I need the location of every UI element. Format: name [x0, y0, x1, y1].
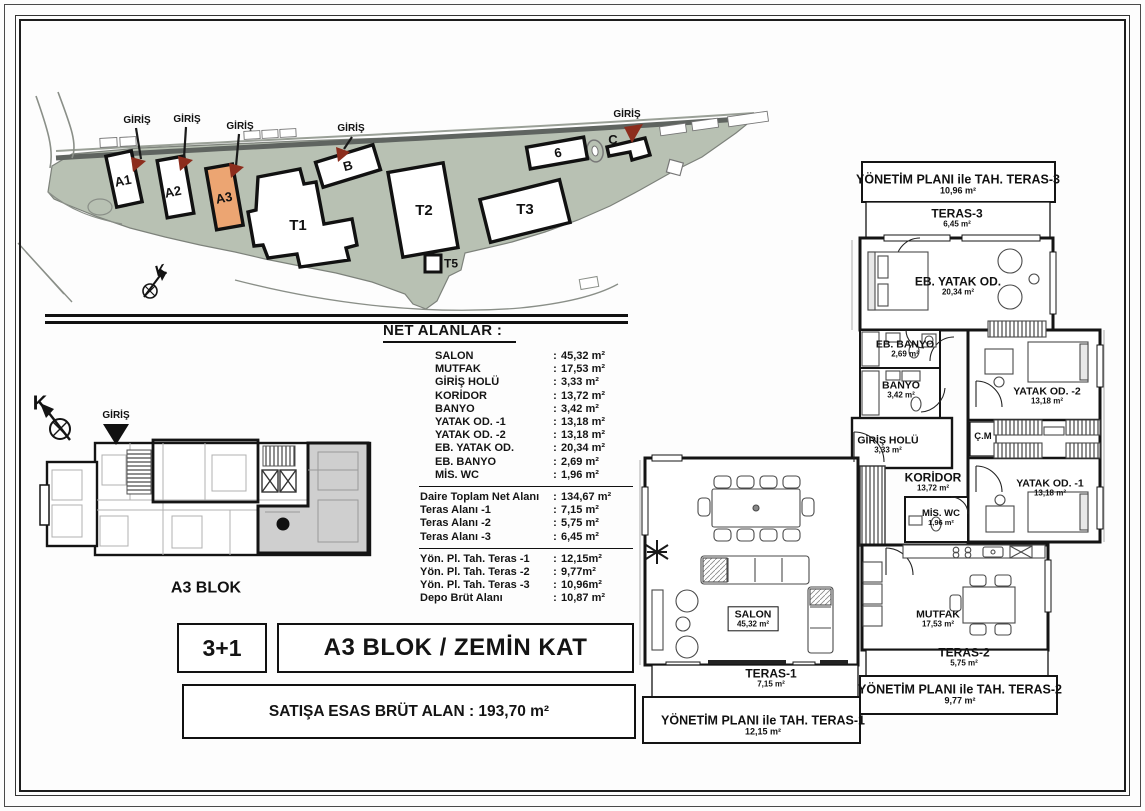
table-row: MUTFAK:17,53 m²: [383, 363, 633, 376]
table-row: EB. BANYO:2,69 m²: [383, 456, 633, 469]
net-areas-table: NET ALANLAR : SALON:45,32 m² MUTFAK:17,5…: [383, 322, 633, 606]
key-plan-name: A3 BLOK: [171, 581, 241, 598]
building-label-c: C: [608, 133, 617, 147]
room-label-teras-3: TERAS-3 6,45 m²: [931, 208, 982, 229]
building-label-t3: T3: [516, 202, 534, 218]
table-row: BANYO:3,42 m²: [383, 403, 633, 416]
sheet-title-box: A3 BLOK / ZEMİN KAT: [277, 623, 634, 673]
table-row: Teras Alanı -1:7,15 m²: [383, 504, 633, 517]
table-divider: [419, 548, 633, 549]
room-label-eb-banyo: EB. BANYO 2,69 m²: [876, 339, 934, 358]
room-label-yonetim-teras-1: YÖNETİM PLANI ile TAH. TERAS-1 12,15 m²: [661, 715, 865, 738]
building-label-a2: A2: [164, 184, 183, 201]
table-row: Yön. Pl. Tah. Teras -2:9,77m²: [383, 566, 633, 579]
key-plan-drawing: [40, 403, 370, 555]
table-row: KORİDOR:13,72 m²: [383, 390, 633, 403]
table-row: YATAK OD. -2:13,18 m²: [383, 429, 633, 442]
key-plan-entrance-label: GİRİŞ: [102, 411, 129, 422]
room-label-teras-1: TERAS-1 7,15 m²: [745, 668, 796, 689]
site-entrance-label: GİRİŞ: [123, 116, 150, 127]
site-entrance-label: GİRİŞ: [173, 115, 200, 126]
key-plan-north-label: K: [33, 394, 47, 415]
net-areas-group-management: Yön. Pl. Tah. Teras -1:12,15m² Yön. Pl. …: [383, 553, 633, 606]
site-entrance-label: GİRİŞ: [226, 122, 253, 133]
room-label-mis-wc: MİS. WC 1,96 m²: [922, 509, 960, 527]
floor-plan-sheet: GİRİŞ GİRİŞ GİRİŞ GİRİŞ GİRİŞ A1 A2 A3 B…: [0, 0, 1145, 811]
building-t5: [425, 255, 441, 272]
room-label-yonetim-teras-2: YÖNETİM PLANI ile TAH. TERAS-2 9,77 m²: [858, 684, 1062, 707]
table-row: Daire Toplam Net Alanı:134,67 m²: [383, 491, 633, 504]
table-row: YATAK OD. -1:13,18 m²: [383, 416, 633, 429]
unit-type-box: 3+1: [177, 623, 267, 673]
room-label-teras-2: TERAS-2 5,75 m²: [938, 647, 989, 668]
room-label-giris-holu: GİRİŞ HOLÜ 3,33 m²: [857, 435, 918, 454]
stairs-icon: [263, 446, 295, 466]
net-areas-group-totals: Daire Toplam Net Alanı:134,67 m² Teras A…: [383, 491, 633, 544]
room-label-koridor: KORİDOR 13,72 m²: [905, 472, 962, 493]
stairs-icon: [127, 450, 151, 494]
room-label-mutfak: MUTFAK 17,53 m²: [916, 609, 960, 628]
table-row: Yön. Pl. Tah. Teras -1:12,15m²: [383, 553, 633, 566]
table-row: Depo Brüt Alanı:10,87 m²: [383, 592, 633, 605]
room-label-yatak-1: YATAK OD. -1 13,18 m²: [1016, 478, 1083, 497]
room-label-salon: SALON 45,32 m²: [728, 606, 779, 631]
room-label-eb-yatak: EB. YATAK OD. 20,34 m²: [915, 276, 1001, 297]
table-row: MİS. WC:1,96 m²: [383, 469, 633, 482]
building-label-a3: A3: [215, 190, 234, 207]
table-row: GİRİŞ HOLÜ:3,33 m²: [383, 376, 633, 389]
site-entrance-label: GİRİŞ: [613, 110, 640, 121]
room-label-yatak-2: YATAK OD. -2 13,18 m²: [1013, 386, 1080, 405]
building-label-a1: A1: [114, 173, 133, 190]
room-label-banyo: BANYO 3,42 m²: [882, 380, 920, 399]
table-row: Teras Alanı -3:6,45 m²: [383, 531, 633, 544]
building-label-t1: T1: [289, 218, 307, 234]
table-row: Yön. Pl. Tah. Teras -3:10,96m²: [383, 579, 633, 592]
site-entrance-label: GİRİŞ: [337, 124, 364, 135]
net-areas-heading: NET ALANLAR :: [383, 322, 516, 343]
unit-location-dot: [277, 518, 290, 531]
room-label-yonetim-teras-3: YÖNETİM PLANI ile TAH. TERAS-3 10,96 m²: [856, 174, 1060, 197]
table-row: EB. YATAK OD.:20,34 m²: [383, 442, 633, 455]
building-label-t5: T5: [444, 258, 458, 271]
table-row: SALON:45,32 m²: [383, 350, 633, 363]
building-label-t2: T2: [415, 203, 433, 219]
gross-area-box: SATIŞA ESAS BRÜT ALAN : 193,70 m²: [182, 684, 636, 739]
table-row: Teras Alanı -2:5,75 m²: [383, 517, 633, 530]
net-areas-group-rooms: SALON:45,32 m² MUTFAK:17,53 m² GİRİŞ HOL…: [383, 350, 633, 482]
table-divider: [419, 486, 633, 487]
room-label-cm: Ç.M: [974, 432, 991, 442]
